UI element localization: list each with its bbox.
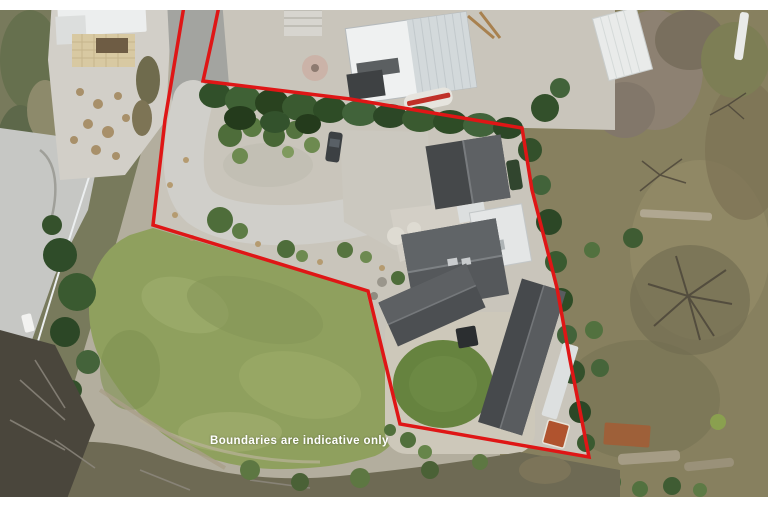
aerial-photo-frame: Boundaries are indicative only [0,0,768,512]
disclaimer-text: Boundaries are indicative only [210,435,389,447]
gazebo [455,325,478,348]
letterbox-top [0,0,768,10]
garage-roof [425,134,510,209]
letterbox-bottom [0,497,768,512]
dark-roof-small [346,70,385,101]
rust-bed-east [603,422,650,447]
